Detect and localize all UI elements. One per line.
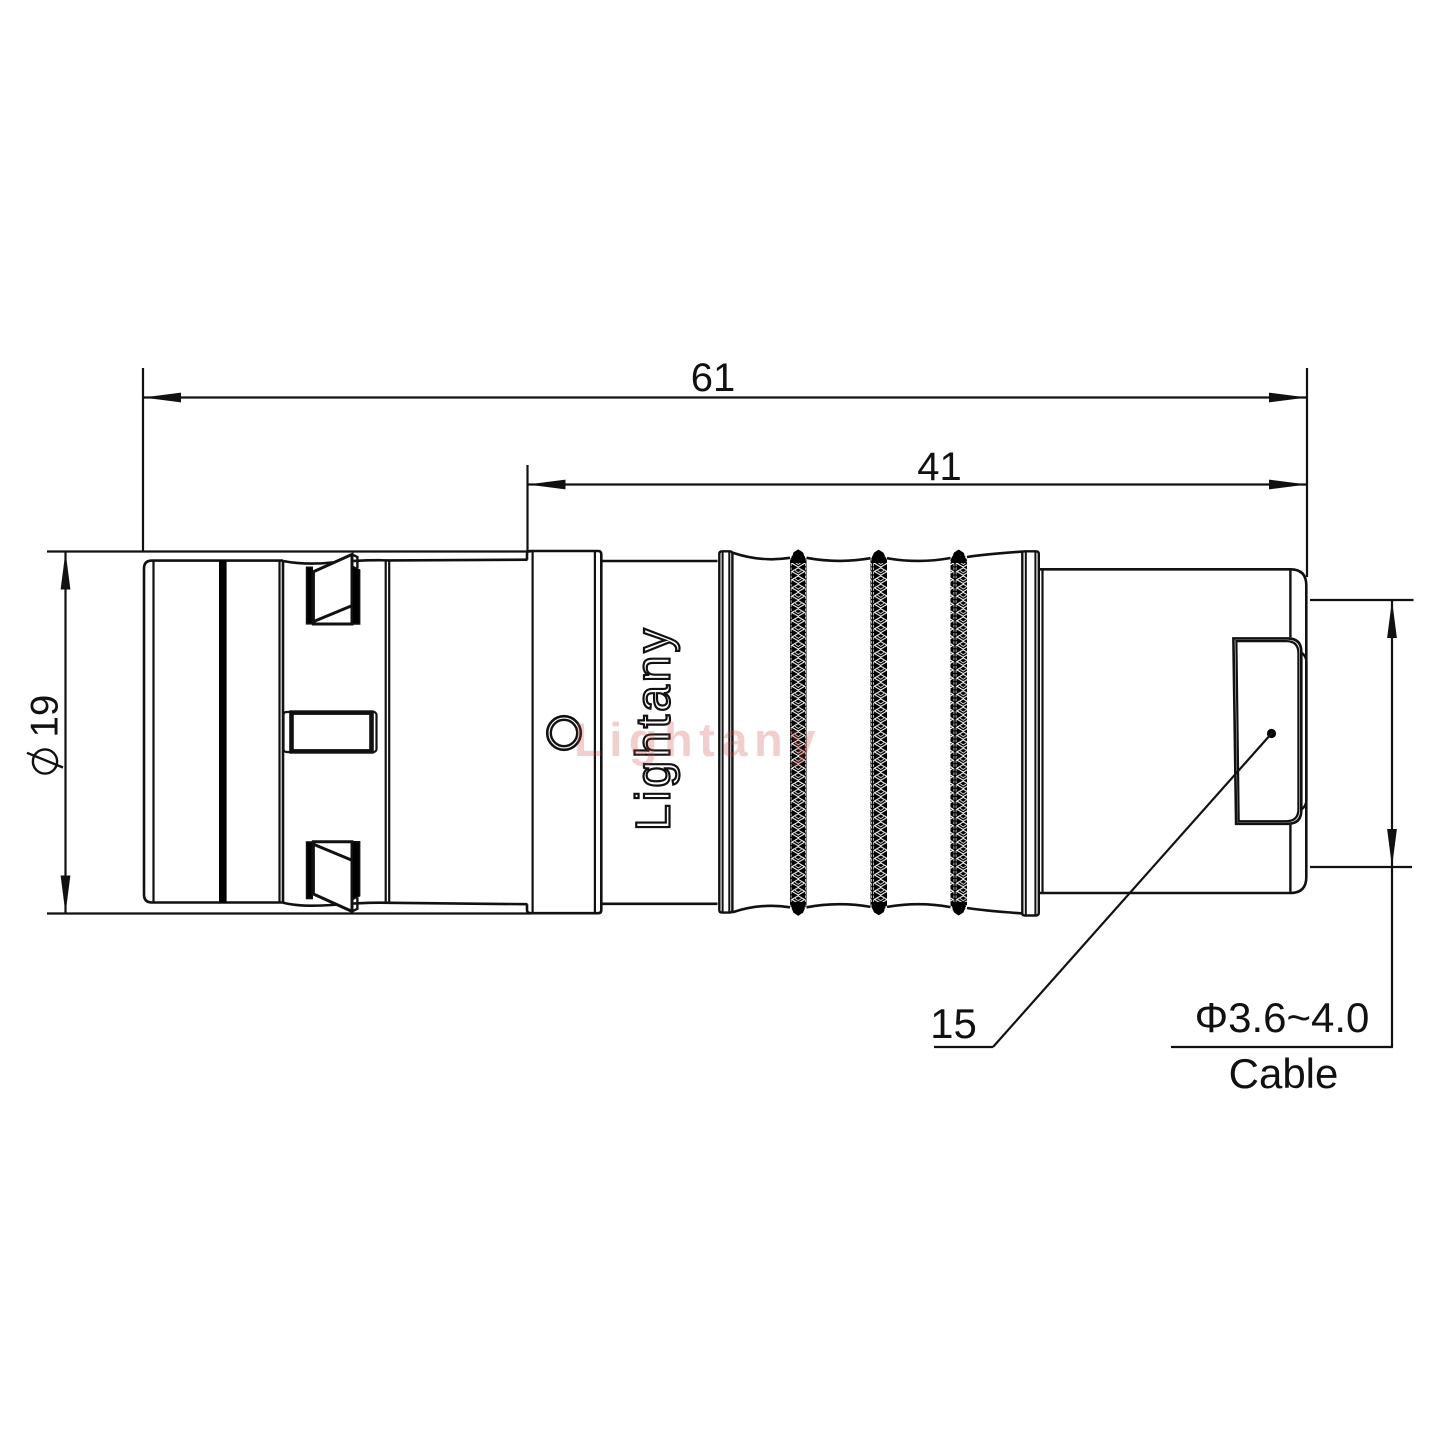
svg-text:Cable: Cable — [1229, 1050, 1339, 1097]
svg-text:Φ3.6~4.0: Φ3.6~4.0 — [1195, 994, 1370, 1041]
svg-text:41: 41 — [917, 445, 962, 489]
svg-text:Lightany: Lightany — [574, 713, 822, 766]
svg-text:61: 61 — [691, 356, 736, 400]
svg-text:19: 19 — [24, 695, 67, 738]
svg-text:15: 15 — [930, 1000, 977, 1047]
